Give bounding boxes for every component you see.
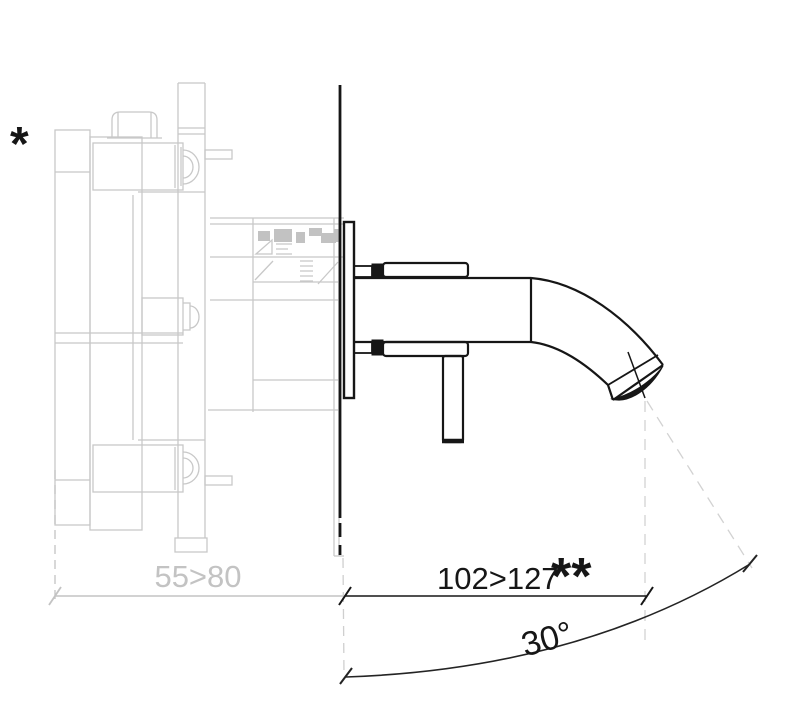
concealed-valve-drawing	[55, 83, 344, 556]
spout-drawing	[344, 222, 663, 442]
top-spigot	[205, 150, 232, 159]
wall-extension-dashed-line	[343, 558, 344, 676]
middle-outlet-port	[142, 298, 183, 335]
recess-depth-dimension-label: 55>80	[154, 559, 241, 594]
bottom-collar-ring	[372, 340, 383, 355]
top-valve-cap	[112, 112, 157, 138]
spout-body	[354, 278, 531, 342]
top-collar	[354, 266, 372, 277]
top-collar-ring	[372, 264, 383, 278]
stream-angle-label: 30°	[517, 614, 577, 664]
stream-projection-lines	[645, 401, 752, 640]
bottom-valve-cylinder	[93, 445, 183, 492]
drawing-svg: * 55>80 102>127 ** 30°	[0, 0, 800, 720]
bottom-body-cover	[383, 342, 468, 356]
technical-drawing-canvas: * 55>80 102>127 ** 30°	[0, 0, 800, 720]
projection-footnote-marker: **	[551, 548, 592, 606]
wall-plate	[344, 222, 354, 398]
projection-dimension-label: 102>127	[437, 561, 559, 596]
spout-curve-inner	[531, 342, 608, 385]
top-body-cover	[383, 263, 468, 277]
stream-direction-dashed-line	[647, 401, 752, 568]
top-valve-cylinder	[93, 143, 183, 190]
valve-back-slab	[55, 130, 90, 525]
bottom-spigot	[205, 476, 232, 485]
spout-handle	[443, 356, 463, 442]
bottom-collar	[354, 342, 372, 353]
footnote-star-label: *	[10, 118, 29, 171]
spout-curve-outer	[531, 278, 663, 365]
